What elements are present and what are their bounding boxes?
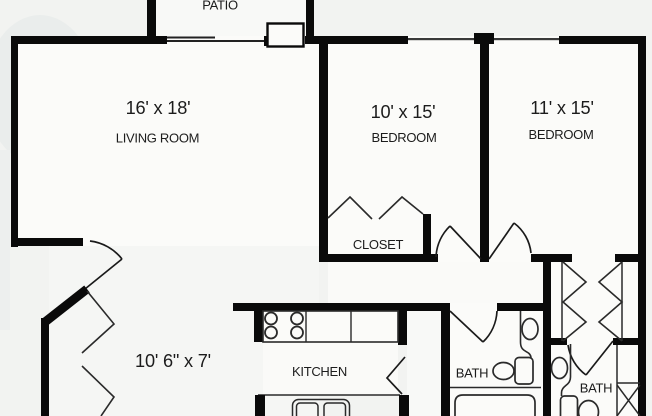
svg-text:BEDROOM: BEDROOM: [528, 127, 593, 142]
svg-text:16' x 18': 16' x 18': [126, 98, 191, 118]
svg-text:KITCHEN: KITCHEN: [292, 364, 347, 379]
svg-text:BATH: BATH: [580, 381, 613, 396]
svg-text:LIVING ROOM: LIVING ROOM: [116, 131, 199, 146]
svg-text:11' x 15': 11' x 15': [530, 98, 593, 118]
svg-text:10' 6" x 7': 10' 6" x 7': [135, 351, 211, 371]
svg-text:CLOSET: CLOSET: [353, 237, 404, 252]
svg-text:10' x 15': 10' x 15': [371, 102, 436, 122]
svg-text:BEDROOM: BEDROOM: [371, 130, 436, 145]
svg-text:BATH: BATH: [456, 366, 489, 381]
svg-text:PATIO: PATIO: [202, 0, 238, 13]
